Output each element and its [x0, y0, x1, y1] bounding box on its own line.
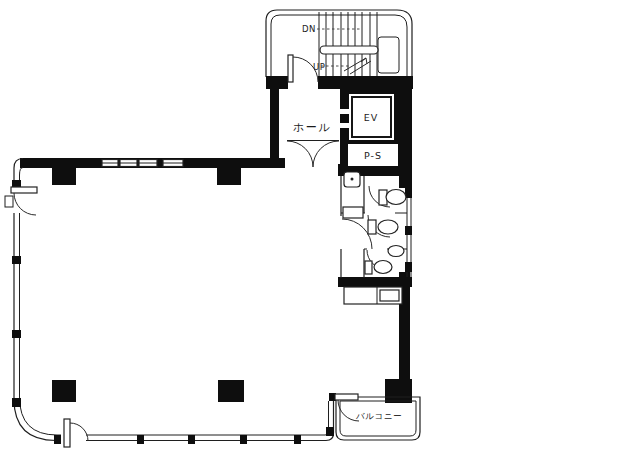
pipe-shaft: P-S	[364, 150, 382, 161]
stairs-down-label: DN	[302, 24, 316, 34]
stair-arrow-2	[350, 61, 371, 74]
bottom-door	[61, 419, 88, 447]
door-leaf	[64, 419, 70, 447]
utility-sink	[343, 207, 363, 218]
left-service-door	[5, 187, 37, 215]
window-mullion	[12, 398, 21, 407]
pipe-shaft-label: P-S	[364, 150, 382, 161]
window-mullion	[12, 180, 21, 187]
toilet-bowl	[374, 261, 392, 274]
hall-left-wall	[270, 76, 279, 168]
window-mullion	[54, 435, 61, 444]
elevator-door-mark	[339, 109, 351, 114]
window-mullion	[294, 435, 301, 444]
hall-label: ホール	[293, 121, 331, 134]
urinal	[388, 246, 404, 257]
main-room	[5, 159, 334, 448]
window-mullion	[137, 435, 144, 444]
stair-handrail	[320, 46, 378, 54]
column	[52, 380, 76, 402]
stair-landing	[378, 37, 399, 73]
elevator-hall: ホール	[287, 121, 339, 167]
kitchenette	[344, 287, 402, 304]
balcony-label: バルコニー	[355, 411, 402, 421]
column	[217, 166, 241, 185]
elevator-shaft: EV	[352, 97, 391, 137]
toilet-tank	[368, 220, 376, 234]
toilet-bowl	[378, 220, 398, 234]
column	[218, 380, 244, 402]
window-mullion	[12, 256, 21, 264]
floor-plan-canvas: DN UP EV P-S	[0, 0, 640, 475]
window-mullion	[405, 262, 412, 272]
column	[52, 166, 76, 185]
balcony-door-leaf	[335, 394, 358, 400]
window-mullion	[405, 226, 412, 235]
hall-double-door-swing-right	[313, 141, 339, 167]
stair-treads	[319, 12, 377, 77]
washbasin-faucet	[351, 178, 354, 181]
window-mullion	[188, 435, 195, 444]
door-stub	[5, 196, 13, 207]
top-wall-windows	[102, 160, 183, 167]
window-mullion	[326, 427, 334, 436]
toilet-bowl	[386, 190, 406, 205]
elevator-label: EV	[364, 112, 379, 123]
corner-column	[385, 379, 412, 403]
elevator-door-mark	[339, 123, 351, 128]
floor-plan: DN UP EV P-S	[0, 0, 640, 475]
hall-double-door-swing-left	[287, 141, 313, 167]
door-leaf	[11, 187, 37, 193]
stair-door-leaf	[288, 55, 293, 82]
toilet-tank	[365, 261, 372, 274]
window-mullion	[240, 435, 247, 444]
kitchenette-sink	[380, 290, 399, 301]
window-mullion	[12, 330, 21, 338]
